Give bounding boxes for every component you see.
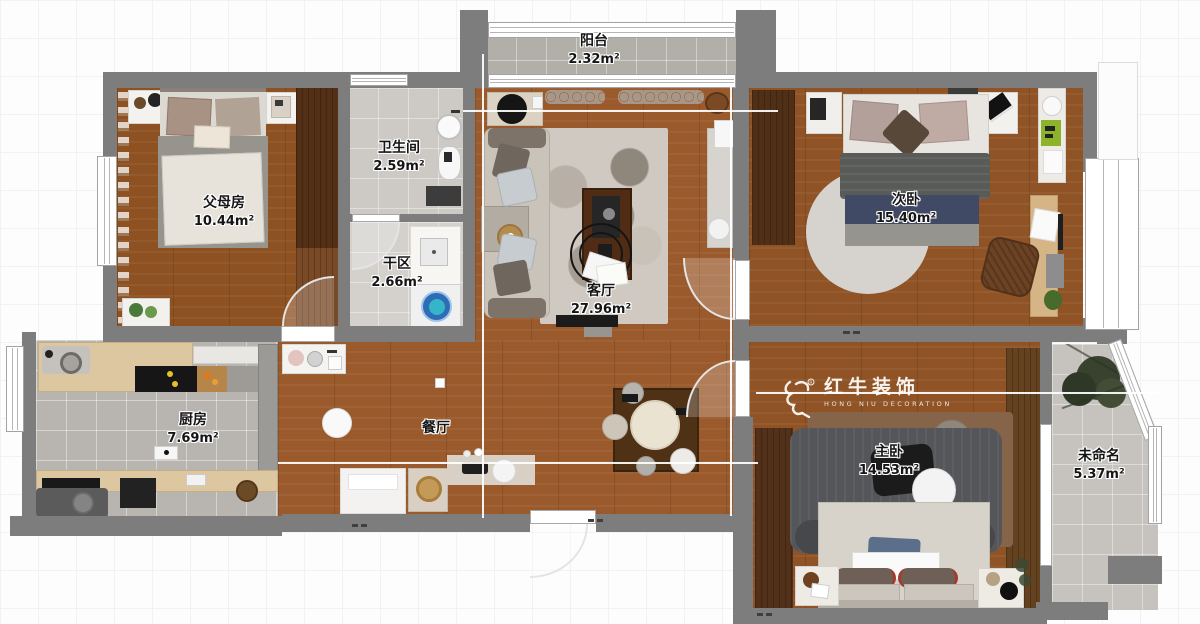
guide-line <box>463 110 778 112</box>
faucet-icon <box>327 350 337 353</box>
wall <box>10 516 282 536</box>
wall <box>22 332 36 532</box>
room-dining-floor[interactable] <box>278 340 735 518</box>
door-frame <box>530 510 596 524</box>
wall <box>735 608 1047 624</box>
wall <box>1036 602 1108 620</box>
room-label-master: 主卧 14.53m² <box>859 444 919 479</box>
wall <box>596 514 735 532</box>
media-box <box>584 327 612 337</box>
decor <box>810 583 830 599</box>
decor <box>603 208 615 220</box>
room-area: 10.44m² <box>194 215 254 230</box>
bed-foot <box>845 224 979 246</box>
decor <box>134 97 146 109</box>
chair[interactable] <box>636 456 656 476</box>
sofa-armrest <box>488 128 546 148</box>
door-frame <box>352 214 400 222</box>
stove[interactable] <box>135 366 197 392</box>
room-label-unnamed: 未命名 5.37m² <box>1073 448 1124 483</box>
window <box>6 346 24 432</box>
food-icon <box>212 379 218 385</box>
door-frame <box>735 360 750 417</box>
wardrobe[interactable] <box>752 90 795 245</box>
table-top <box>630 400 680 450</box>
wall <box>338 88 350 326</box>
wall-mark <box>853 331 860 334</box>
wardrobe[interactable] <box>755 428 793 610</box>
room-label-parents: 父母房 10.44m² <box>194 195 254 230</box>
wall <box>1108 556 1162 584</box>
round-table[interactable] <box>708 218 730 240</box>
decor <box>1046 254 1064 288</box>
room-name: 餐厅 <box>422 420 450 436</box>
room-label-living: 客厅 27.96m² <box>571 283 631 318</box>
door-frame <box>735 260 750 320</box>
table-lamp <box>1000 582 1018 600</box>
wall <box>733 417 753 624</box>
bath-mat <box>426 186 461 206</box>
decor <box>45 350 53 358</box>
room-name: 厨房 <box>167 412 218 428</box>
papers <box>1043 150 1063 174</box>
room-name: 主卧 <box>859 444 919 460</box>
entry-mat <box>447 455 535 485</box>
desk-mat <box>1041 120 1061 146</box>
room-label-kitchen: 厨房 7.69m² <box>167 412 218 447</box>
chair[interactable] <box>1042 96 1062 116</box>
room-area: 2.66m² <box>371 276 422 291</box>
decor <box>348 474 398 490</box>
guide-line <box>730 86 732 516</box>
room-kitchen-floor[interactable] <box>36 340 278 518</box>
decor <box>986 572 1000 586</box>
svg-text:R: R <box>809 380 812 386</box>
basket <box>236 480 258 502</box>
drain-icon <box>432 250 436 254</box>
decor <box>532 96 543 109</box>
window <box>97 156 117 266</box>
room-label-dryarea: 干区 2.66m² <box>371 256 422 291</box>
wardrobe[interactable] <box>296 88 338 248</box>
decor <box>275 100 283 106</box>
papers <box>1030 208 1061 242</box>
room-label-dining: 餐厅 <box>422 420 450 440</box>
wall <box>282 514 530 532</box>
watermark-subtitle: HONG NIU DECORATION <box>824 400 952 408</box>
wall-mark <box>588 519 594 522</box>
decor <box>435 378 445 388</box>
room-area: 15.40m² <box>876 212 936 227</box>
plant-icon <box>145 306 157 318</box>
placemat-icon <box>622 394 638 402</box>
window <box>1148 426 1162 524</box>
chair[interactable] <box>60 352 82 374</box>
pot-icon <box>72 492 94 514</box>
decor <box>463 450 471 458</box>
guide-line <box>482 54 484 518</box>
food-icon <box>204 372 211 379</box>
room-name: 父母房 <box>194 195 254 211</box>
pendant-lamp[interactable] <box>322 408 352 438</box>
bay-window <box>1085 158 1139 330</box>
pillow[interactable] <box>492 259 531 296</box>
laundry-icon <box>429 299 445 315</box>
wall <box>103 72 475 88</box>
door-frame <box>281 326 335 342</box>
chair[interactable] <box>670 448 696 474</box>
room-area: 5.37m² <box>1073 468 1124 483</box>
sink[interactable] <box>436 114 462 140</box>
room-name: 干区 <box>371 256 422 272</box>
plant-garland <box>618 90 704 104</box>
plant-icon <box>129 303 143 317</box>
wall <box>1083 72 1097 172</box>
room-area: 7.69m² <box>167 432 218 447</box>
window <box>1040 424 1052 566</box>
sofa-armrest <box>488 298 546 318</box>
room-name: 次卧 <box>876 192 936 208</box>
decor <box>164 450 169 455</box>
room-name: 卫生间 <box>373 140 424 156</box>
decor <box>1058 214 1063 250</box>
chair[interactable] <box>602 414 628 440</box>
guide-line <box>278 462 758 464</box>
wall <box>770 72 1097 88</box>
plant-icon <box>1015 558 1029 572</box>
decor <box>444 152 452 162</box>
wall-mark <box>597 519 603 522</box>
appliance[interactable] <box>120 478 156 508</box>
sliding-door[interactable] <box>488 74 736 88</box>
room-area: 27.96m² <box>571 303 631 318</box>
room-area: 2.32m² <box>568 53 619 68</box>
decor <box>810 98 826 120</box>
plant-pot[interactable] <box>497 94 527 124</box>
wall-mark <box>843 331 850 334</box>
decor <box>186 474 206 486</box>
wall-mark <box>352 524 358 527</box>
room-area: 14.53m² <box>859 464 919 479</box>
basket <box>416 476 442 502</box>
bowl-icon <box>288 350 304 366</box>
floorplan-canvas: 阳台 2.32m² 父母房 10.44m² 卫生间 2.59m² 干区 2.66… <box>0 0 1200 624</box>
window <box>350 74 408 86</box>
bull-logo-icon: R <box>782 378 816 418</box>
faucet-icon <box>451 110 460 113</box>
room-name: 阳台 <box>568 33 619 49</box>
burner-icon <box>167 371 173 377</box>
room-label-bathroom: 卫生间 2.59m² <box>373 140 424 175</box>
wall <box>733 342 749 360</box>
room-name: 客厅 <box>571 283 631 299</box>
wall <box>733 326 1097 342</box>
wall <box>463 88 475 342</box>
room-label-balcony: 阳台 2.32m² <box>568 33 619 68</box>
wall-mark <box>766 613 772 616</box>
watermark: R 红牛装饰 HONG NIU DECORATION <box>782 378 952 418</box>
wall <box>736 10 776 88</box>
window-frame <box>1098 62 1138 160</box>
wall <box>733 86 749 260</box>
decor <box>1045 134 1053 138</box>
plant-icon <box>1044 290 1062 310</box>
pillow[interactable] <box>194 125 231 148</box>
wall-mark <box>757 613 763 616</box>
curtain-decor <box>118 92 129 324</box>
tall-cabinet[interactable] <box>258 344 278 472</box>
plant-garland <box>545 90 605 104</box>
room-name: 未命名 <box>1073 448 1124 464</box>
room-area: 2.59m² <box>373 160 424 175</box>
wall-mark <box>361 524 367 527</box>
decor <box>328 356 342 370</box>
door-entrance[interactable] <box>530 524 588 578</box>
sink <box>307 351 323 367</box>
plant-icon <box>1019 574 1031 586</box>
decor <box>1045 126 1055 131</box>
burner-icon <box>172 381 178 387</box>
room-label-second: 次卧 15.40m² <box>876 192 936 227</box>
watermark-brand: 红牛装饰 <box>824 378 952 397</box>
